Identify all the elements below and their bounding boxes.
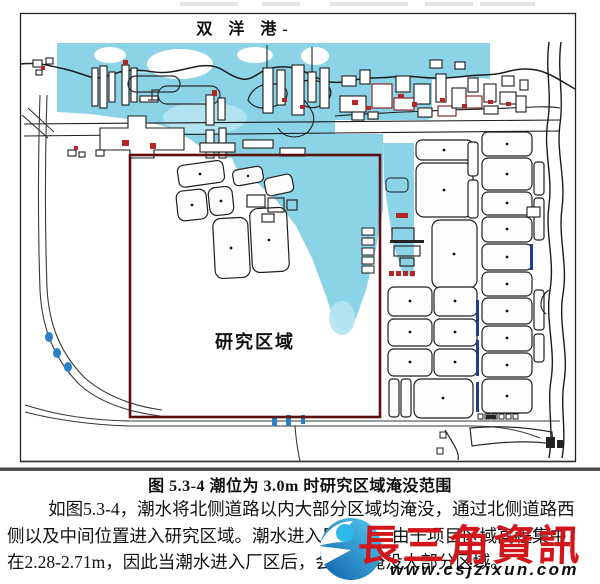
inundation-map: 研究区域 (0, 0, 600, 473)
body-line-2: 侧以及中间位置进入研究区域。潮水进入厂区后，由于项目区域高程集中 (7, 523, 593, 550)
tiny-square-column (362, 228, 374, 273)
body-line-1: 如图5.3-4，潮水将北侧道路以内大部分区域均淹没，通过北侧道路西 (7, 496, 593, 523)
body-paragraph: 如图5.3-4，潮水将北侧道路以内大部分区域均淹没，通过北侧道路西 侧以及中间位… (7, 496, 593, 576)
document-page: 研究区域 (0, 0, 600, 584)
port-title: 双 洋 港- (196, 19, 293, 38)
body-line-3: 在2.28-2.71m，因此当潮水进入厂区后，会迅速淹没大部分区域。 (7, 549, 593, 576)
page-rule (0, 468, 600, 471)
study-area-label: 研究区域 (215, 331, 295, 352)
scan-smudges (180, 2, 535, 6)
figure-caption: 图 5.3-4 潮位为 3.0m 时研究区域淹没范围 (0, 472, 600, 496)
